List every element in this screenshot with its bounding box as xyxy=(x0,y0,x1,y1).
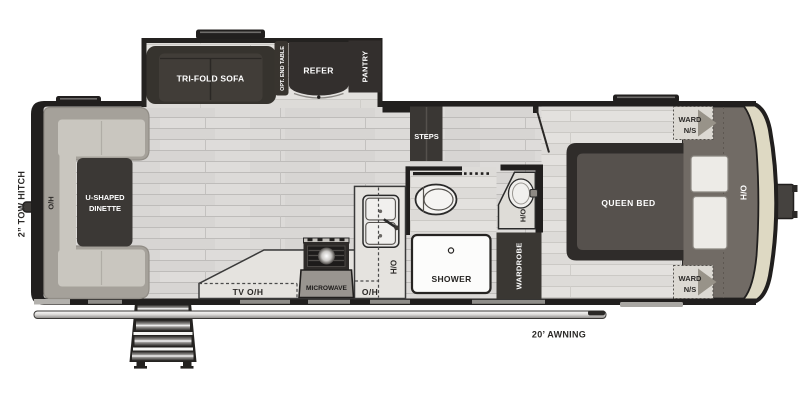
svg-text:H/O: H/O xyxy=(739,185,749,201)
svg-text:WARD: WARD xyxy=(679,115,702,124)
svg-text:REFER: REFER xyxy=(303,66,333,76)
svg-text:MICROWAVE: MICROWAVE xyxy=(306,285,348,292)
svg-text:QUEEN BED: QUEEN BED xyxy=(601,198,655,208)
svg-text:TV O/H: TV O/H xyxy=(233,287,264,297)
svg-text:WARDROBE: WARDROBE xyxy=(515,243,524,290)
svg-text:H/O: H/O xyxy=(519,209,528,223)
svg-text:N/S: N/S xyxy=(684,126,697,135)
svg-text:OPT. END TABLE: OPT. END TABLE xyxy=(280,46,286,91)
svg-text:O/H: O/H xyxy=(47,196,56,209)
svg-text:H/O: H/O xyxy=(390,260,399,274)
svg-text:WARD: WARD xyxy=(679,274,702,283)
svg-text:SHOWER: SHOWER xyxy=(431,274,471,284)
svg-text:PANTRY: PANTRY xyxy=(361,51,370,83)
svg-text:O/H: O/H xyxy=(362,287,378,297)
svg-text:20’ AWNING: 20’ AWNING xyxy=(532,330,586,340)
svg-text:DINETTE: DINETTE xyxy=(89,204,121,213)
svg-text:TRI-FOLD SOFA: TRI-FOLD SOFA xyxy=(177,74,245,84)
svg-text:2” TOW HITCH: 2” TOW HITCH xyxy=(17,171,27,237)
svg-text:N/S: N/S xyxy=(684,285,697,294)
svg-text:U-SHAPED: U-SHAPED xyxy=(85,193,125,202)
svg-text:STEPS: STEPS xyxy=(414,132,439,141)
